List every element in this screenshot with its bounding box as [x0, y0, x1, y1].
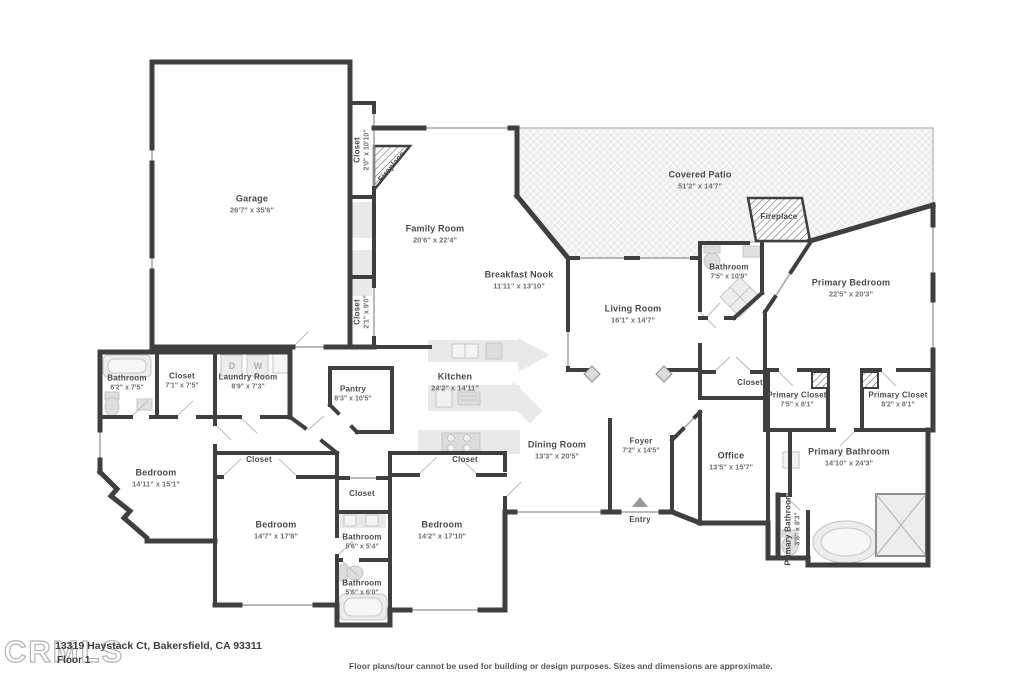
- floor-label: Floor 1: [57, 655, 90, 666]
- post-primary-closet-1: [812, 372, 828, 388]
- floor-plan-page: { "watermark": "CRMLS", "footer": { "add…: [0, 0, 1024, 683]
- covered-patio-area: [517, 128, 933, 258]
- disclaimer-text: Floor plans/tour cannot be used for buil…: [349, 661, 773, 671]
- fireplace-patio: [748, 198, 810, 241]
- shower-stall: [876, 494, 926, 556]
- entry-arrow-icon: [632, 497, 648, 507]
- post-primary-closet-2: [862, 372, 878, 388]
- floor-plan-drawing: [0, 0, 1024, 683]
- fireplace-family-room: [374, 146, 410, 190]
- property-address: 13319 Haystack Ct, Bakersfield, CA 93311: [55, 640, 262, 652]
